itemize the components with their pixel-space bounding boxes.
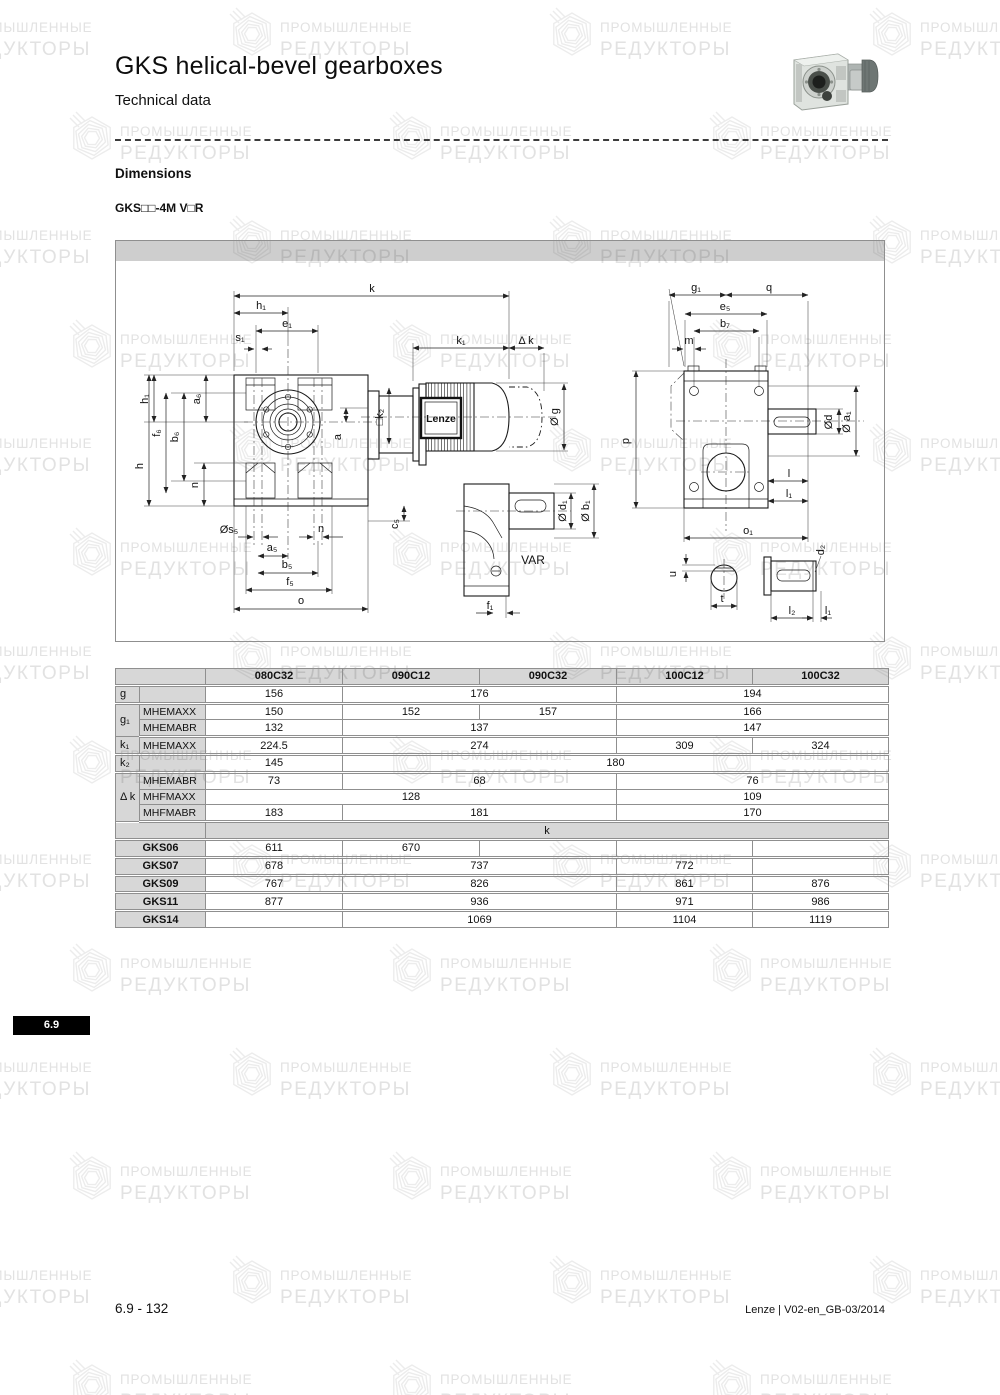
table-cell: 224.5 (206, 737, 343, 755)
dimension-label: Ø a₁ (841, 411, 853, 433)
row-label: MHFMAXX (140, 789, 206, 805)
table-cell: 1119 (753, 911, 889, 928)
table-row: k (116, 822, 889, 840)
column-header: 100C12 (617, 669, 753, 686)
dimension-label: m (684, 335, 693, 347)
table-row: g₁MHEMAXX150152157166 (116, 703, 889, 720)
table-cell: 767 (206, 875, 343, 893)
table-cell: 936 (343, 893, 617, 911)
dimension-label: g₁ (691, 282, 701, 294)
column-header: 090C32 (480, 669, 617, 686)
row-label: MHEMABR (140, 772, 206, 789)
table-cell (116, 822, 206, 840)
table-cell (480, 839, 617, 857)
table-cell: 183 (206, 805, 343, 822)
table-cell: 109 (617, 789, 889, 805)
dimension-label: l₁ (786, 488, 792, 500)
table-row: MHFMAXX128109 (116, 789, 889, 805)
table-cell: 166 (617, 703, 889, 720)
table-cell: k (206, 822, 889, 840)
dimension-label: n (318, 523, 324, 535)
dimension-label: a₆ (191, 394, 203, 405)
table-cell: 670 (343, 839, 480, 857)
dimension-label: Lenze (426, 413, 456, 425)
dimension-label: k₁ (456, 335, 466, 347)
table-row: k₂145180 (116, 754, 889, 772)
dimension-label: a (332, 433, 344, 440)
table-cell: 1069 (343, 911, 617, 928)
dimension-label: o (298, 595, 304, 607)
model-code: GKS□□-4M V□R (115, 201, 203, 215)
table-cell: 157 (480, 703, 617, 720)
table-cell: 181 (343, 805, 617, 822)
table-cell: 137 (343, 720, 617, 737)
dimension-label: f₁ (487, 600, 494, 612)
table-cell: 145 (206, 754, 343, 772)
table-cell: 772 (617, 857, 753, 875)
chapter-tab: 6.9 (13, 1016, 90, 1035)
table-cell: 176 (343, 685, 617, 703)
table-cell: 861 (617, 875, 753, 893)
dimension-label: Øs₅ (220, 524, 239, 536)
row-label (140, 685, 206, 703)
dimension-label: e₁ (282, 318, 292, 330)
table-cell: 971 (617, 893, 753, 911)
dimension-label: h₁ (139, 394, 151, 404)
table-cell (753, 857, 889, 875)
dimension-label: Ø g (549, 408, 561, 426)
table-row: MHEMABR132137147 (116, 720, 889, 737)
table-row: Δ kMHEMABR736876 (116, 772, 889, 789)
table-cell: 274 (343, 737, 617, 755)
row-label: GKS11 (116, 893, 206, 911)
dimension-label: u (667, 571, 679, 577)
dimension-label: h₁ (256, 300, 266, 312)
dimension-label: f₅ (286, 576, 294, 588)
column-header: 090C12 (343, 669, 480, 686)
column-header: 100C32 (753, 669, 889, 686)
dashed-separator (115, 139, 888, 141)
table-cell: 309 (617, 737, 753, 755)
dimension-label: h (134, 463, 146, 469)
table-cell: 170 (617, 805, 889, 822)
table-cell: 132 (206, 720, 343, 737)
table-cell (753, 839, 889, 857)
row-label: k₁ (116, 737, 140, 755)
column-header (116, 669, 206, 686)
dimension-label: n (189, 482, 201, 488)
table-cell: 152 (343, 703, 480, 720)
table-row: k₁MHEMAXX224.5274309324 (116, 737, 889, 755)
row-label (140, 754, 206, 772)
page-subtitle: Technical data (115, 92, 211, 109)
catalog-page: GKS helical-bevel gearboxes Technical da… (0, 0, 1000, 1395)
table-cell: 180 (343, 754, 889, 772)
dimension-label: a₅ (267, 542, 278, 554)
table-row: 080C32090C12090C32100C12100C32 (116, 669, 889, 686)
page-title: GKS helical-bevel gearboxes (115, 52, 443, 81)
table-cell: 986 (753, 893, 889, 911)
section-heading: Dimensions (115, 166, 192, 181)
table-cell: 678 (206, 857, 343, 875)
row-label: MHFMABR (140, 805, 206, 822)
table-row: GKS11877936971986 (116, 893, 889, 911)
dimension-label: q (766, 282, 772, 294)
drawing-svg: kh₁e₁s₁k₁Δ k□k₂aØ gh₁a₆f₆b₆hnc₅Øs₅na₅b₅f… (116, 241, 884, 641)
page-number: 6.9 - 132 (115, 1301, 168, 1316)
dimension-label: Ø b₁ (580, 500, 592, 522)
dimension-label: Ød (823, 415, 835, 430)
dimension-label: l (788, 468, 790, 480)
table-cell: 876 (753, 875, 889, 893)
table-row: GKS09767826861876 (116, 875, 889, 893)
dimension-drawing: kh₁e₁s₁k₁Δ k□k₂aØ gh₁a₆f₆b₆hnc₅Øs₅na₅b₅f… (115, 240, 885, 642)
dimension-label: l₂ (789, 605, 796, 617)
dimension-label: s₁ (235, 332, 245, 344)
row-label: k₂ (116, 754, 140, 772)
dimension-label: e₅ (720, 301, 731, 313)
gearbox-product-photo (786, 46, 886, 118)
table-cell: 147 (617, 720, 889, 737)
row-label: GKS09 (116, 875, 206, 893)
table-cell: 826 (343, 875, 617, 893)
dimension-label: □k₂ (374, 409, 386, 425)
dimension-label: p (620, 438, 632, 444)
table-cell: 68 (343, 772, 617, 789)
table-cell: 611 (206, 839, 343, 857)
table-row: g156176194 (116, 685, 889, 703)
row-label: Δ k (116, 772, 140, 821)
row-label: g₁ (116, 703, 140, 737)
dimension-label: b₅ (282, 559, 293, 571)
table-cell: 877 (206, 893, 343, 911)
table-cell: 73 (206, 772, 343, 789)
row-label: GKS06 (116, 839, 206, 857)
table-row: GKS14106911041119 (116, 911, 889, 928)
table-cell (206, 911, 343, 928)
row-label: g (116, 685, 140, 703)
dimension-label: d₂ (815, 545, 827, 555)
table-cell: 128 (206, 789, 617, 805)
dimension-label: o₁ (743, 525, 753, 537)
row-label: GKS14 (116, 911, 206, 928)
dimension-label: Δ k (518, 335, 534, 347)
table-row: GKS06611670 (116, 839, 889, 857)
dimension-label: VAR (521, 553, 545, 567)
dimension-label: f₆ (151, 429, 163, 437)
table-cell: 76 (617, 772, 889, 789)
table-row: MHFMABR183181170 (116, 805, 889, 822)
dimension-label: b₇ (720, 318, 730, 330)
dimensions-table: 080C32090C12090C32100C12100C32g156176194… (115, 668, 889, 928)
row-label: MHEMAXX (140, 737, 206, 755)
dimension-label: c₅ (389, 519, 401, 529)
dimension-label: k (369, 283, 375, 295)
dimension-label: l₁ (825, 605, 831, 617)
row-label: MHEMABR (140, 720, 206, 737)
table-cell: 156 (206, 685, 343, 703)
table-cell: 737 (343, 857, 617, 875)
column-header: 080C32 (206, 669, 343, 686)
dimension-label: b₆ (169, 432, 181, 443)
table-cell: 1104 (617, 911, 753, 928)
table-cell: 194 (617, 685, 889, 703)
row-label: MHEMAXX (140, 703, 206, 720)
row-label: GKS07 (116, 857, 206, 875)
table-cell: 150 (206, 703, 343, 720)
table-cell (617, 839, 753, 857)
dimension-label: Ø d₁ (557, 500, 569, 522)
dimension-label: t (720, 593, 723, 605)
document-reference: Lenze | V02-en_GB-03/2014 (745, 1304, 885, 1316)
table-row: GKS07678737772 (116, 857, 889, 875)
table-cell: 324 (753, 737, 889, 755)
